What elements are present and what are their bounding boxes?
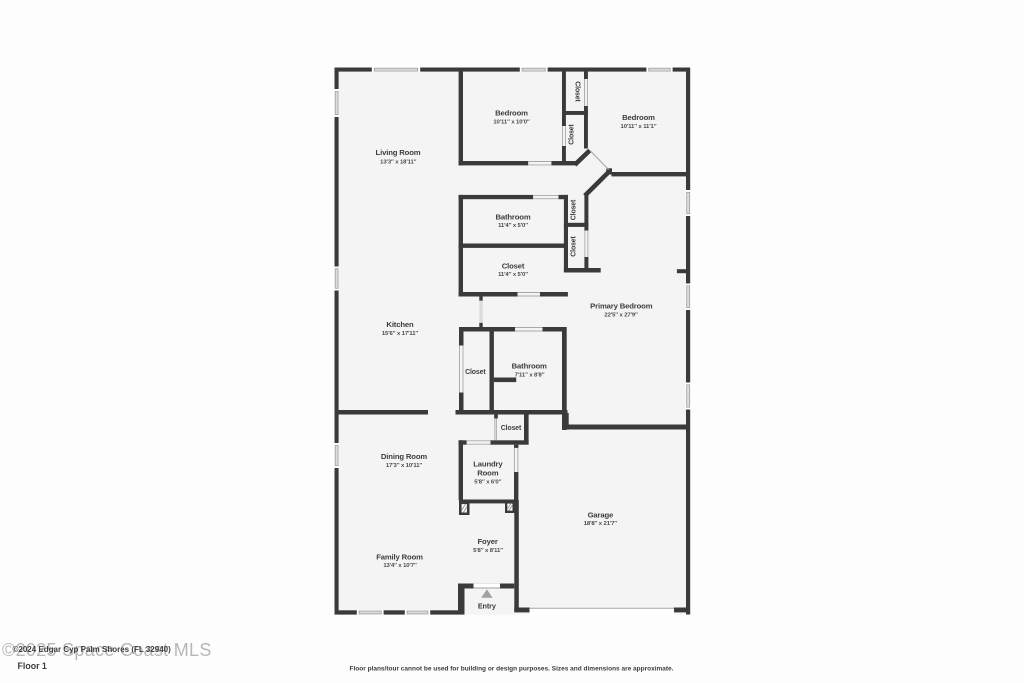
svg-text:Closet: Closet: [571, 199, 578, 220]
svg-text:17′3″ x 10′11″: 17′3″ x 10′11″: [386, 463, 423, 469]
svg-text:5′8″ x 8′11″: 5′8″ x 8′11″: [473, 548, 503, 554]
svg-text:Closet: Closet: [501, 425, 522, 432]
svg-text:Bedroom: Bedroom: [495, 109, 528, 118]
svg-text:Primary Bedroom: Primary Bedroom: [590, 302, 653, 311]
svg-text:Floor 1: Floor 1: [18, 661, 47, 671]
svg-text:Living Room: Living Room: [376, 148, 421, 157]
svg-text:5′8″ x 6′0″: 5′8″ x 6′0″: [474, 479, 501, 485]
svg-text:18′8″ x 21′7″: 18′8″ x 21′7″: [584, 521, 618, 527]
svg-text:15′6″ x 17′11″: 15′6″ x 17′11″: [382, 331, 419, 337]
svg-text:10′11″ x 11′1″: 10′11″ x 11′1″: [621, 124, 657, 130]
svg-text:Garage: Garage: [588, 511, 614, 520]
svg-text:Closet: Closet: [569, 123, 576, 144]
svg-text:Floor plans/tour cannot be use: Floor plans/tour cannot be used for buil…: [350, 666, 674, 673]
svg-text:Closet: Closet: [502, 261, 525, 270]
svg-text:Entry: Entry: [478, 602, 497, 611]
svg-text:22′5″ x 27′9″: 22′5″ x 27′9″: [604, 312, 638, 318]
svg-text:Foyer: Foyer: [478, 537, 498, 546]
svg-text:11′4″ x 5′0″: 11′4″ x 5′0″: [498, 272, 528, 278]
svg-text:Dining Room: Dining Room: [381, 452, 427, 461]
svg-text:Bathroom: Bathroom: [512, 362, 547, 371]
svg-text:Closet: Closet: [573, 81, 580, 102]
svg-text:Bedroom: Bedroom: [622, 113, 655, 122]
svg-text:10′11″ x 10′0″: 10′11″ x 10′0″: [493, 119, 530, 125]
svg-text:7′11″ x 8′8″: 7′11″ x 8′8″: [515, 372, 545, 378]
svg-text:13′4″ x 10′7″: 13′4″ x 10′7″: [383, 563, 417, 569]
svg-text:Bathroom: Bathroom: [495, 212, 530, 221]
svg-text:11′4″ x 5′0″: 11′4″ x 5′0″: [498, 223, 528, 229]
svg-text:©2024 Edgar Cyp Palm Shores (F: ©2024 Edgar Cyp Palm Shores (FL 32940): [13, 645, 172, 654]
svg-text:Laundry: Laundry: [473, 460, 503, 469]
svg-text:Kitchen: Kitchen: [386, 320, 414, 329]
svg-text:Closet: Closet: [465, 369, 486, 376]
svg-text:Family Room: Family Room: [376, 553, 423, 562]
svg-text:Room: Room: [477, 468, 498, 477]
svg-text:Closet: Closet: [571, 235, 578, 256]
svg-text:13′3″ x 18′11″: 13′3″ x 18′11″: [380, 159, 417, 165]
